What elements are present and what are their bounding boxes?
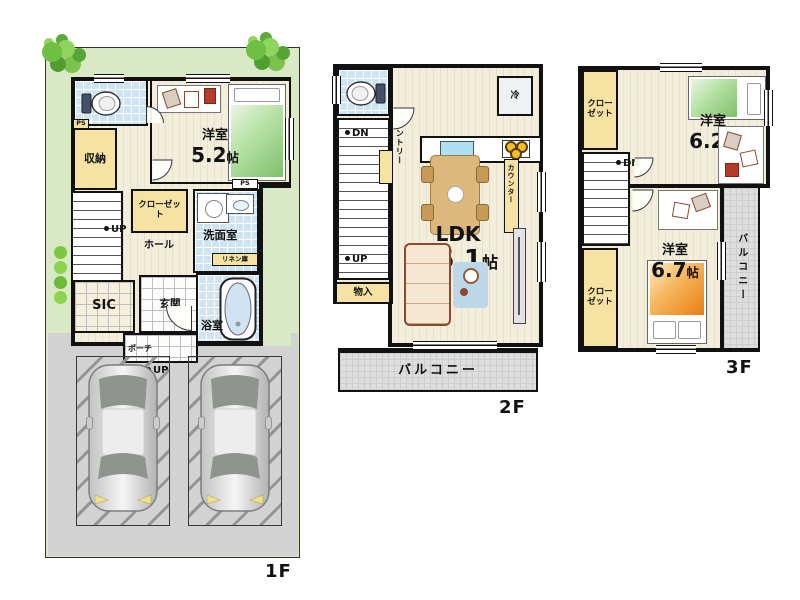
desk-icon bbox=[658, 190, 718, 230]
sofa-icon bbox=[404, 243, 451, 326]
floor2-plan: DN UP パントリー 物入 冷 カウンター LDK bbox=[333, 62, 548, 422]
room-bedroom-1f: 洋室 5.2帖 bbox=[150, 79, 291, 184]
room-closet-3f-lower: クローゼット bbox=[582, 248, 618, 348]
room-closet-3f-upper: クローゼット bbox=[582, 70, 618, 150]
window bbox=[660, 63, 702, 72]
porch-label: ポーチ bbox=[128, 344, 152, 353]
bedroom-1f-unit: 帖 bbox=[227, 150, 239, 165]
floor3-label: 3F bbox=[726, 358, 753, 379]
chair-icon bbox=[476, 204, 489, 221]
bedroom-3f-lower-unit: 帖 bbox=[687, 265, 699, 280]
floor2-label: 2F bbox=[499, 398, 526, 419]
room-storage-1f: 収納 bbox=[73, 128, 117, 190]
car-icon bbox=[198, 363, 272, 513]
window bbox=[656, 345, 696, 354]
stairs-2f-up-label: UP bbox=[345, 254, 367, 266]
bedroom-3f-lower-size: 6.7 bbox=[651, 258, 686, 282]
desk-icon bbox=[157, 85, 221, 113]
bedroom-1f-size: 5.2 bbox=[191, 143, 226, 167]
storage-1f-label: 収納 bbox=[75, 130, 115, 188]
fridge: 冷 bbox=[497, 76, 533, 116]
ps-top-label: PS bbox=[76, 120, 85, 127]
closet-3f-lower-label: クローゼット bbox=[586, 250, 614, 346]
window bbox=[537, 242, 546, 282]
floor1-site: 洋室 5.2帖 PS 収納 UP クローゼット ホール 洗面室 リネン庫 PS … bbox=[45, 47, 300, 558]
ps-box-washroom: PS bbox=[232, 179, 258, 189]
bedroom-1f-name: 洋室 bbox=[202, 129, 228, 144]
ps-washroom-label: PS bbox=[240, 180, 249, 187]
floor1-label: 1F bbox=[265, 562, 292, 583]
stairs-1f-up-label: UP bbox=[104, 224, 126, 236]
balcony-3f-text: バルコニー bbox=[735, 233, 747, 303]
washbasin-icon bbox=[226, 194, 254, 214]
balcony-3f: バルコニー bbox=[720, 186, 760, 350]
bedroom-1f-label: 洋室 5.2帖 bbox=[170, 123, 260, 173]
hall-label: ホール bbox=[144, 240, 174, 252]
floor-plan-canvas: 洋室 5.2帖 PS 収納 UP クローゼット ホール 洗面室 リネン庫 PS … bbox=[0, 0, 800, 600]
bedroom-3f-lower-label: 洋室 6.7帖 bbox=[630, 238, 720, 288]
window bbox=[186, 74, 230, 83]
car-icon bbox=[86, 363, 160, 513]
sink-icon bbox=[440, 141, 474, 156]
pantry-box bbox=[379, 150, 393, 184]
chair-icon bbox=[421, 204, 434, 221]
window bbox=[94, 74, 124, 83]
room-closet-1f: クローゼット bbox=[131, 189, 188, 233]
washing-machine-icon bbox=[197, 193, 229, 223]
window bbox=[537, 172, 546, 212]
window bbox=[764, 90, 773, 126]
linen-label: リネン庫 bbox=[222, 256, 248, 263]
window bbox=[332, 76, 341, 104]
storage-2f-box: 物入 bbox=[335, 282, 391, 304]
bathtub-icon bbox=[219, 277, 257, 341]
lawn-notch bbox=[259, 184, 291, 346]
sliding-door bbox=[413, 341, 497, 350]
washroom-label: 洗面室 bbox=[203, 229, 238, 242]
room-bathroom: 浴室 bbox=[196, 273, 261, 343]
storage-2f-label: 物入 bbox=[337, 284, 389, 302]
desk-icon bbox=[718, 126, 764, 184]
balcony-2f-label: バルコニー bbox=[340, 353, 536, 390]
chair-icon bbox=[476, 166, 489, 183]
linen-box: リネン庫 bbox=[212, 253, 258, 266]
floor3-plan: クローゼット 洋室 6.2帖 DN クローゼット bbox=[578, 62, 778, 392]
toilet-icon bbox=[81, 90, 123, 118]
bedroom-3f-lower-name: 洋室 bbox=[662, 244, 688, 259]
toilet-icon bbox=[344, 80, 386, 108]
counter-bar: カウンター bbox=[504, 159, 519, 233]
closet-1f-label: クローゼット bbox=[137, 191, 182, 231]
tree-icon bbox=[246, 40, 266, 60]
room-sic: SIC bbox=[73, 280, 135, 333]
sic-label: SIC bbox=[75, 282, 133, 331]
window bbox=[285, 118, 294, 160]
balcony-2f: バルコニー bbox=[338, 348, 538, 392]
stairs-2f-dn-label: DN bbox=[345, 128, 369, 140]
chair-icon bbox=[421, 166, 434, 183]
fridge-label: 冷 bbox=[499, 78, 531, 114]
bathroom-label: 浴室 bbox=[201, 320, 223, 333]
tv-board bbox=[513, 228, 526, 324]
balcony-3f-label: バルコニー bbox=[724, 188, 758, 348]
bush-icon bbox=[54, 246, 67, 259]
closet-3f-upper-label: クローゼット bbox=[586, 72, 614, 148]
tree-icon bbox=[42, 42, 62, 62]
room-washroom-1f: 洗面室 リネン庫 bbox=[193, 189, 259, 273]
coffee-table-icon bbox=[453, 262, 488, 308]
stove-icon bbox=[502, 140, 530, 158]
counter-label: カウンター bbox=[507, 164, 515, 204]
room-toilet-2f bbox=[337, 68, 390, 116]
stairs-1f bbox=[71, 191, 123, 286]
